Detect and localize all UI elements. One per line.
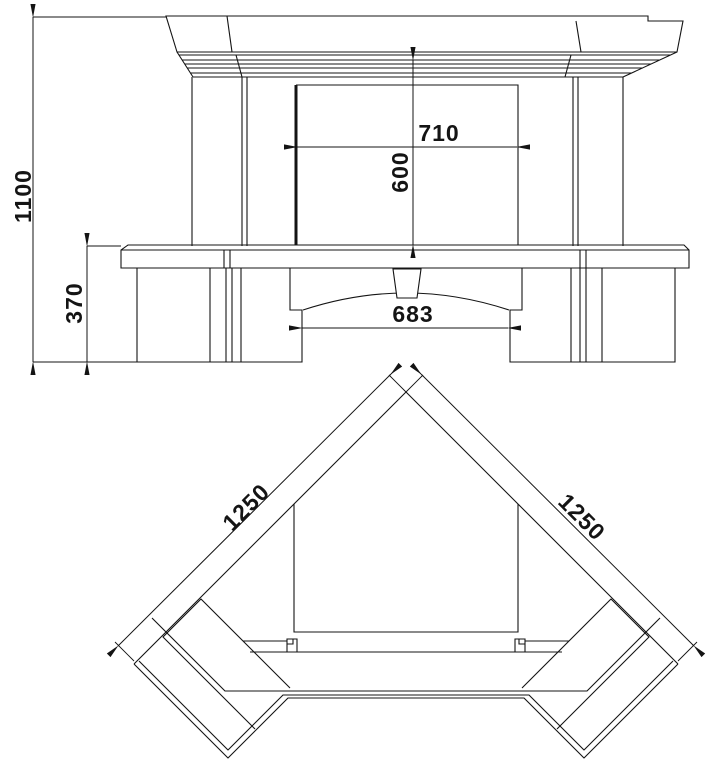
crown-molding-steps [179, 55, 671, 77]
dim-label-opening-height: 600 [387, 151, 413, 192]
dim-label-hearth-opening-width: 683 [392, 301, 433, 327]
dimension-plinth-height: 370 [61, 246, 121, 362]
keystone [393, 269, 421, 298]
left-pedestal-corner [163, 599, 290, 729]
dimension-opening-height: 600 [387, 60, 413, 245]
right-plinth-joints [571, 268, 602, 362]
mantel-shelf [166, 16, 683, 52]
ext-lines-left-flank [115, 369, 406, 661]
left-jamb-notch [287, 639, 297, 652]
crown-molding-miter-joints [236, 55, 571, 77]
fireplace-technical-drawing: 1100 370 710 600 683 1250 1250 [0, 0, 707, 768]
dimensions: 1100 370 710 600 683 1250 1250 [10, 17, 697, 661]
left-plinth-outline [137, 268, 302, 362]
mantel-shelf-miter-joints [227, 16, 581, 52]
crown-molding [177, 52, 677, 77]
hearth-front-edge [152, 618, 660, 691]
left-plinth-block [137, 268, 302, 362]
dimension-opening-width: 710 [297, 120, 517, 147]
ext-lines-right-flank [406, 369, 697, 661]
dim-label-plinth-height: 370 [61, 282, 87, 323]
right-pedestal-corner [522, 599, 649, 729]
dim-label-left-flank: 1250 [217, 478, 274, 535]
right-plinth-outline [510, 268, 675, 362]
hearth-shelf-outline [121, 245, 689, 268]
left-column-lines [192, 77, 247, 246]
right-column [573, 77, 623, 246]
right-column-lines [573, 77, 623, 246]
dimension-right-flank: 1250 [406, 369, 697, 661]
plan-view [134, 392, 678, 758]
dimension-hearth-opening-width: 683 [302, 301, 508, 328]
firebox-plan-walls [294, 504, 518, 632]
dimension-total-height: 1100 [10, 17, 166, 362]
left-plinth-joints [210, 268, 241, 362]
left-column [192, 77, 247, 246]
dim-label-opening-width: 710 [418, 120, 459, 146]
dim-label-total-height: 1100 [10, 169, 36, 223]
mantel-shelf-outline [166, 16, 683, 52]
front-band-inner [139, 661, 673, 750]
hearth-shelf-miter-joints [224, 250, 586, 268]
hearth-shelf [121, 245, 689, 268]
drawing-sheet: 1100 370 710 600 683 1250 1250 [0, 0, 707, 768]
dim-label-right-flank: 1250 [553, 488, 610, 545]
right-jamb-notch [515, 639, 525, 652]
dimension-left-flank: 1250 [115, 369, 406, 661]
front-band-outer [134, 664, 678, 758]
body-front-lines [243, 641, 569, 652]
right-plinth-block [510, 268, 675, 362]
ext-lines-total-height [33, 17, 166, 362]
